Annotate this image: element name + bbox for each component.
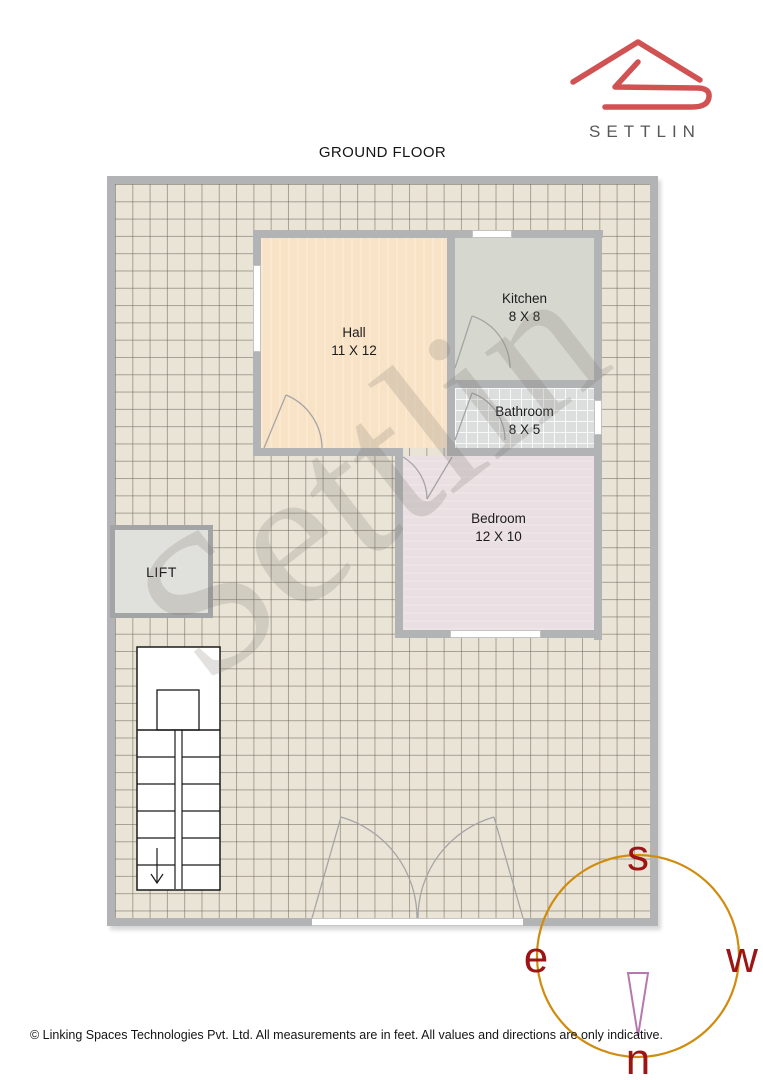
bathroom-label: Bathroom 8 X 5 [455,403,594,439]
bedroom-door-leaf [427,457,452,499]
floorplan-page: SETTLIN GROUND FLOOR LIFT [0,0,763,1080]
bedroom-size: 12 X 10 [403,528,594,546]
hall-size: 11 X 12 [261,342,447,360]
compass-needle-icon [628,973,648,1036]
stairs-upper-flight [157,690,199,730]
entrance-left-leaf [312,817,341,918]
entrance-right-arc [418,817,494,918]
floor-title: GROUND FLOOR [107,144,658,161]
hall-name: Hall [261,324,447,342]
hall-door-leaf [264,395,286,448]
bathroom-name: Bathroom [455,403,594,421]
hall-door-arc [286,395,322,448]
staircase [137,647,220,890]
settlin-logo: SETTLIN [565,30,725,148]
entrance-left-arc [341,817,417,918]
bedroom-name: Bedroom [403,510,594,528]
copyright-note: © Linking Spaces Technologies Pvt. Ltd. … [30,1028,750,1042]
brand-name: SETTLIN [565,122,725,142]
roof-logo-icon [565,30,725,120]
floor-plan: LIFT [107,176,658,926]
kitchen-size: 8 X 8 [455,308,594,326]
bedroom-label: Bedroom 12 X 10 [403,510,594,546]
kitchen-label: Kitchen 8 X 8 [455,290,594,326]
bathroom-size: 8 X 5 [455,421,594,439]
kitchen-name: Kitchen [455,290,594,308]
bedroom-door-arc [403,457,427,499]
stairs-outline [137,647,220,890]
compass-west: w [725,933,758,982]
hall-label: Hall 11 X 12 [261,324,447,360]
compass-south: s [627,831,649,880]
doors-stairs-overlay [107,176,658,926]
compass-east: e [524,933,548,982]
